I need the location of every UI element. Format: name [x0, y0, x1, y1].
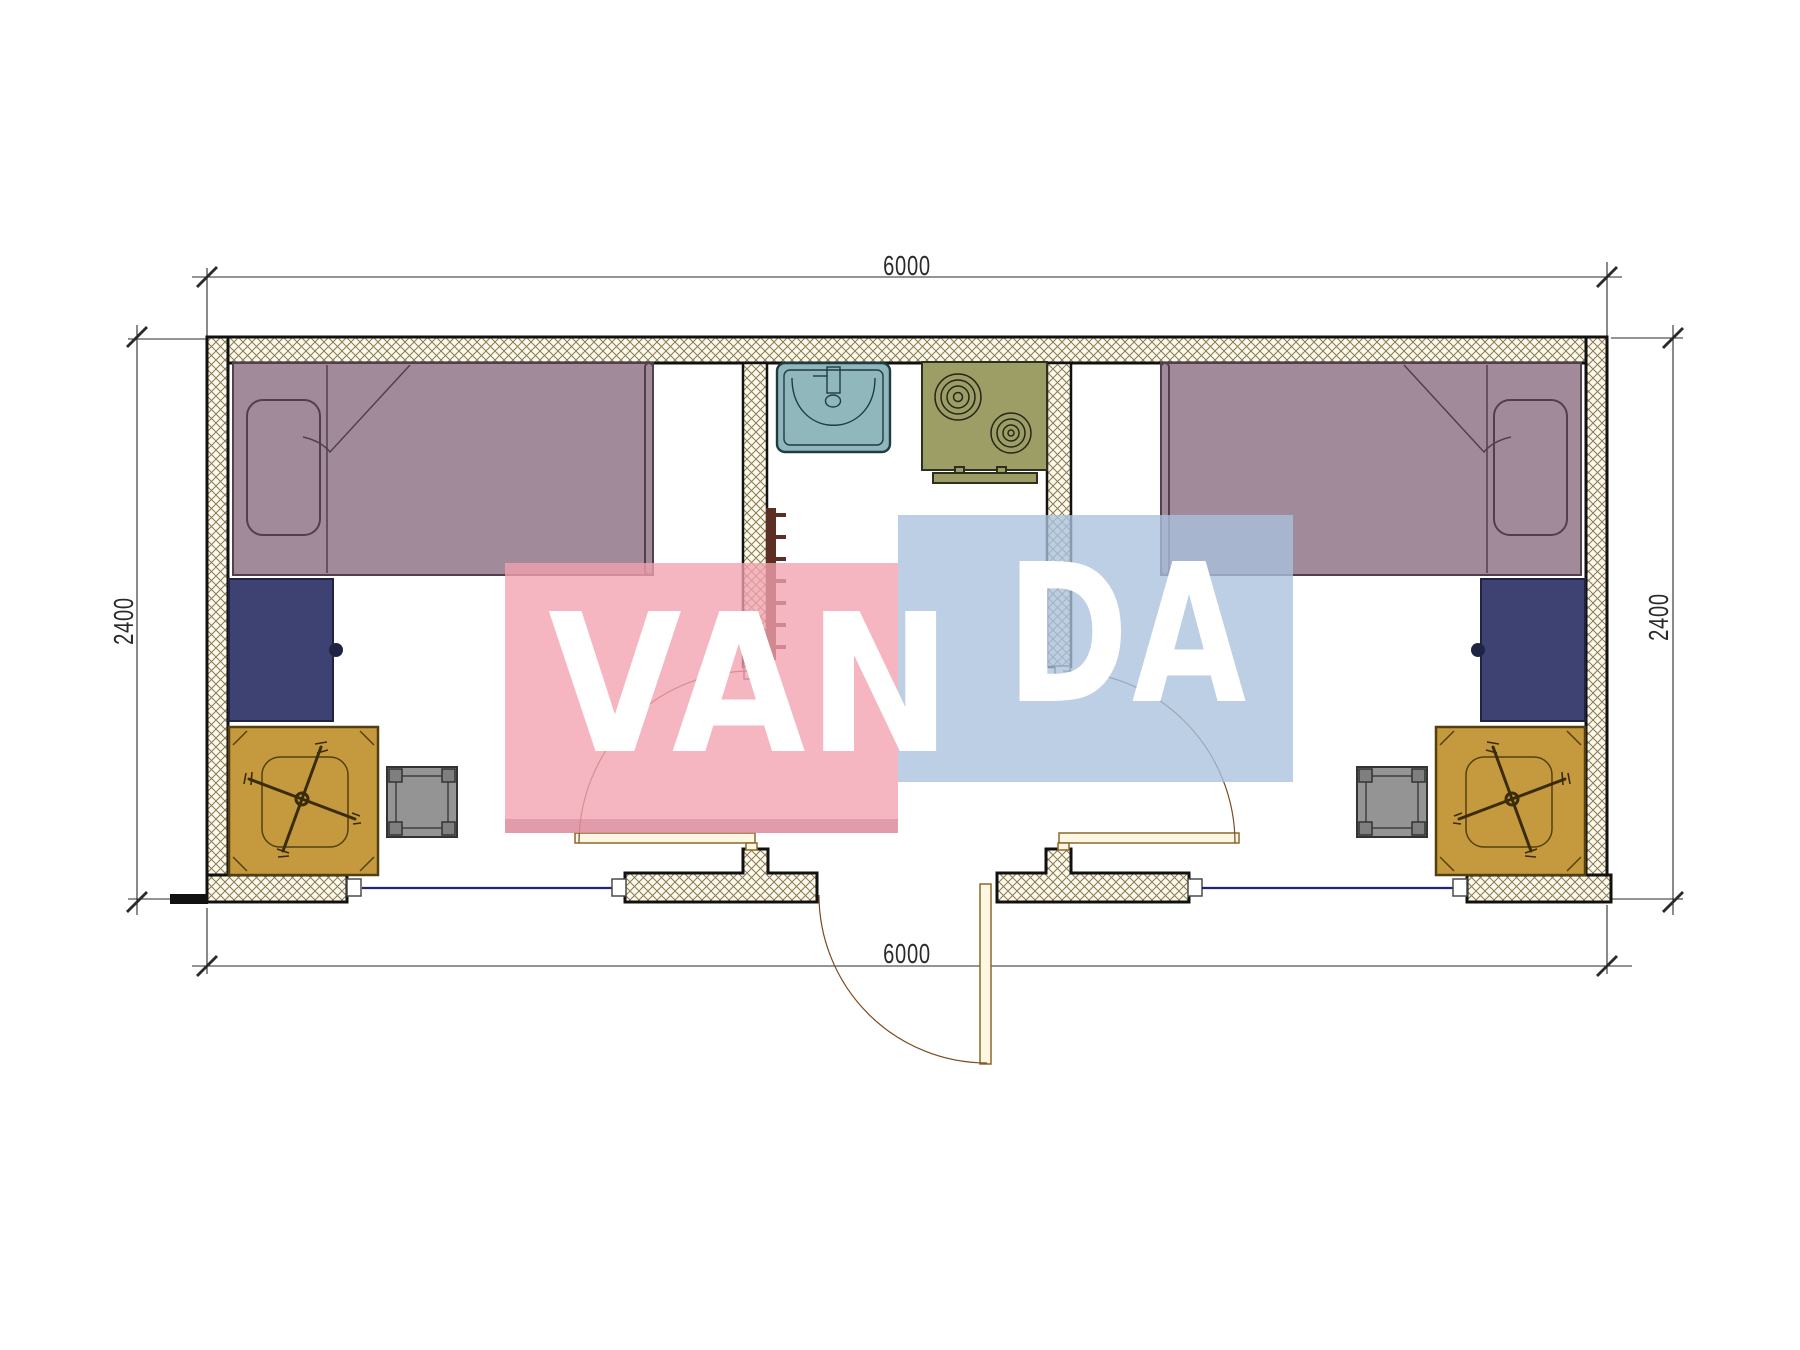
desk-right — [1471, 579, 1585, 721]
window-jamb — [1453, 879, 1467, 896]
stool-left — [387, 767, 457, 837]
window-jamb — [347, 879, 361, 896]
dimension-label-left: 2400 — [110, 578, 138, 664]
window-right — [1188, 879, 1467, 896]
bed-left — [233, 363, 653, 575]
watermark-text-da: DA — [1006, 540, 1249, 732]
office-chair-left — [229, 727, 378, 875]
stove-tray — [933, 473, 1037, 483]
window-jamb — [612, 879, 626, 896]
floor-plan-page: 6000 6000 2400 2400 VAN DA — [0, 0, 1800, 1350]
wall-right — [1586, 337, 1607, 902]
office-chair-right — [1436, 727, 1585, 875]
wall-bottom-mid-left — [625, 849, 817, 902]
wall-bottom-right — [1467, 875, 1611, 902]
bed-side-rail — [645, 363, 653, 575]
pillow — [1494, 400, 1567, 535]
entrance-door — [819, 884, 991, 1064]
window-left — [347, 879, 626, 896]
desk-knob — [1471, 643, 1485, 657]
watermark-pink-edge — [505, 819, 898, 833]
watermark-text-van: VAN — [548, 590, 954, 782]
stool-right — [1357, 767, 1427, 837]
sink — [777, 363, 890, 452]
wall-left — [207, 337, 228, 902]
pillow — [247, 400, 320, 535]
stove — [922, 362, 1047, 483]
wall-bottom-mid-right — [997, 849, 1189, 902]
wall-bottom-left — [207, 875, 347, 902]
window-jamb — [1188, 879, 1202, 896]
dimension-label-top: 6000 — [864, 252, 950, 280]
desk-knob — [329, 643, 343, 657]
dimension-label-right: 2400 — [1645, 574, 1673, 660]
desk-left — [229, 579, 343, 721]
corner-foot — [170, 894, 208, 904]
dimension-left — [127, 325, 207, 915]
dimension-label-bottom: 6000 — [864, 940, 950, 968]
wall-top — [207, 337, 1607, 363]
